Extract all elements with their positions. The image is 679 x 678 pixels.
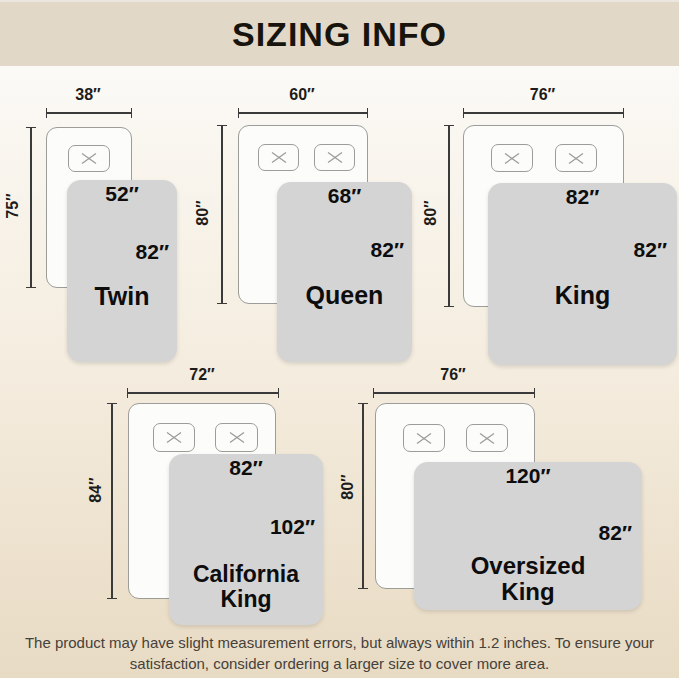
blanket-length-label: 102″ [169, 515, 315, 539]
mattress-width-label: 72″ [127, 366, 277, 384]
pillow [555, 144, 597, 172]
size-name-label: King [488, 282, 677, 309]
pillow-x-icon [325, 151, 345, 164]
length-dimension-line [107, 403, 117, 599]
blanket [67, 180, 177, 362]
mattress-length-label: 84″ [87, 466, 107, 514]
blanket-width-label: 82″ [488, 185, 677, 209]
pillow-x-icon [414, 432, 434, 445]
pillow [258, 144, 299, 171]
blanket-width-label: 120″ [414, 464, 642, 488]
blanket-length-label: 82″ [414, 521, 632, 545]
width-dimension-line [238, 108, 368, 118]
pillow-x-icon [227, 431, 247, 444]
pillow [215, 423, 258, 452]
blanket-length-label: 82″ [67, 240, 169, 264]
width-dimension-line [46, 108, 132, 118]
mattress-length-label: 80″ [339, 463, 359, 511]
pillow-x-icon [164, 431, 184, 444]
pillow [466, 424, 508, 452]
page-title: SIZING INFO [232, 15, 447, 54]
blanket [277, 182, 412, 362]
pillow [491, 144, 533, 172]
pillow [153, 423, 195, 452]
length-dimension-line [444, 125, 454, 307]
mattress-length-label: 80″ [194, 189, 214, 237]
size-name-label: Twin [67, 283, 177, 310]
blanket-length-label: 82″ [488, 238, 667, 262]
footer-note-line1: The product may have slight measurement … [0, 632, 679, 653]
pillow-x-icon [79, 152, 99, 165]
width-dimension-line [463, 108, 624, 118]
mattress-length-label: 75″ [4, 182, 24, 230]
blanket-width-label: 82″ [169, 456, 323, 480]
length-dimension-line [358, 403, 368, 589]
blanket-width-label: 68″ [277, 184, 412, 208]
size-name-label: Queen [277, 282, 412, 309]
mattress-width-label: 76″ [463, 86, 622, 104]
mattress-width-label: 38″ [46, 86, 130, 104]
length-dimension-line [26, 127, 36, 288]
pillow [403, 424, 445, 452]
header-bar: SIZING INFO [0, 0, 679, 66]
pillow [314, 144, 355, 171]
pillow-x-icon [269, 151, 289, 164]
width-dimension-line [127, 388, 279, 398]
footer-note-line2: satisfaction, consider ordering a larger… [0, 653, 679, 674]
mattress-length-label: 80″ [422, 189, 442, 237]
footer-note: The product may have slight measurement … [0, 632, 679, 674]
mattress-width-label: 76″ [373, 366, 533, 384]
size-name-label: CaliforniaKing [169, 562, 323, 612]
blanket-width-label: 52″ [67, 182, 177, 206]
mattress-width-label: 60″ [238, 86, 366, 104]
pillow-x-icon [566, 152, 586, 165]
pillow [68, 145, 110, 172]
pillow-x-icon [502, 152, 522, 165]
sizing-info-graphic: SIZING INFO 38″ 75″ 52″ 82″ Twin 60″ 80″… [0, 0, 679, 678]
blanket [488, 183, 677, 365]
pillow-x-icon [477, 432, 497, 445]
width-dimension-line [373, 388, 535, 398]
length-dimension-line [217, 125, 227, 304]
blanket-length-label: 82″ [277, 238, 404, 262]
size-name-label: OversizedKing [414, 553, 642, 605]
